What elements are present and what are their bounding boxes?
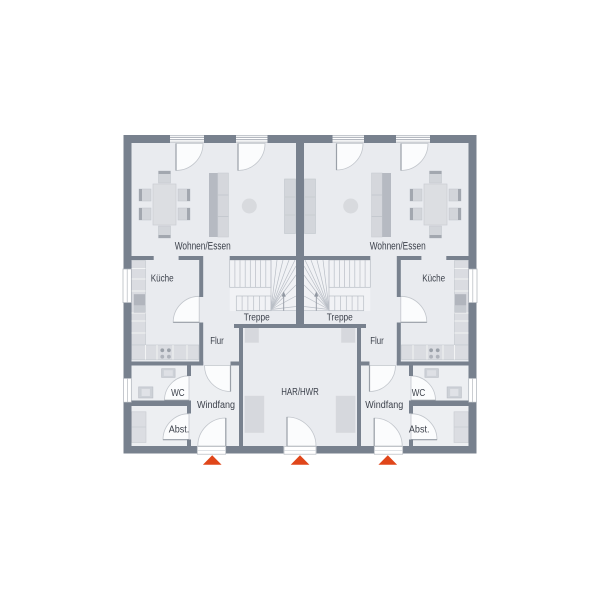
svg-text:Flur: Flur — [210, 336, 224, 347]
svg-text:Windfang: Windfang — [365, 400, 403, 411]
svg-text:Wohnen/Essen: Wohnen/Essen — [175, 241, 231, 253]
svg-text:Abst.: Abst. — [409, 424, 430, 435]
svg-text:HAR/HWR: HAR/HWR — [281, 386, 319, 398]
svg-text:Flur: Flur — [370, 336, 384, 347]
svg-text:Treppe: Treppe — [327, 312, 353, 323]
svg-text:Wohnen/Essen: Wohnen/Essen — [370, 241, 426, 253]
svg-text:WC: WC — [171, 388, 185, 399]
svg-text:Windfang: Windfang — [197, 400, 235, 411]
svg-text:Treppe: Treppe — [244, 313, 270, 324]
svg-text:Abst.: Abst. — [169, 424, 190, 435]
svg-text:Küche: Küche — [151, 274, 174, 285]
svg-text:WC: WC — [412, 388, 426, 399]
svg-text:Küche: Küche — [422, 274, 445, 285]
